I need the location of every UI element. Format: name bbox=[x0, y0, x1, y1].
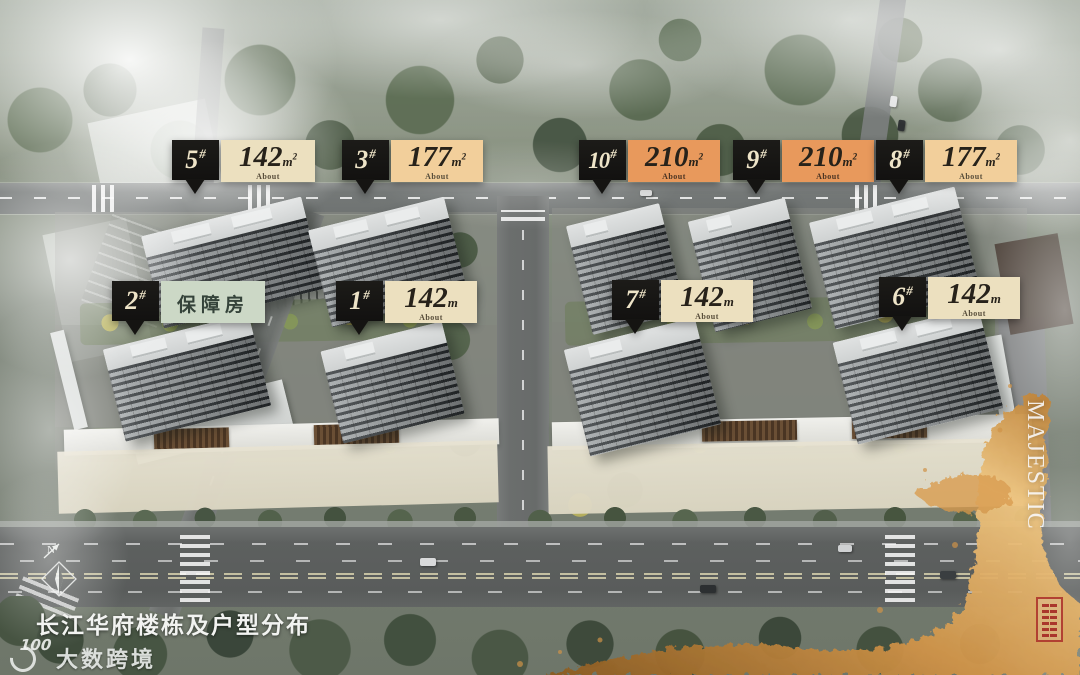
area-value: 142m bbox=[680, 281, 734, 314]
rooftop-unit bbox=[343, 342, 375, 362]
hash-mark: # bbox=[906, 283, 913, 299]
hash-mark: # bbox=[639, 286, 646, 302]
about-note: About bbox=[425, 172, 449, 181]
area-value-box: 177m2About bbox=[925, 140, 1017, 182]
pointer-tail bbox=[185, 179, 205, 194]
building-number: 7 bbox=[625, 287, 638, 313]
hash-mark: # bbox=[369, 146, 376, 162]
pointer-tail bbox=[349, 320, 369, 335]
pointer-tail bbox=[125, 320, 145, 335]
road-central-vertical bbox=[497, 196, 549, 536]
area-value-box: 142mAbout bbox=[928, 277, 1020, 319]
building-number-box: 10# bbox=[579, 140, 626, 180]
building-number: 6 bbox=[892, 284, 905, 310]
hash-mark: # bbox=[760, 146, 767, 162]
rooftop-unit bbox=[588, 339, 623, 359]
area-value-box: 210m2About bbox=[782, 140, 874, 182]
building-number-box: 7# bbox=[612, 280, 659, 320]
pointer-tail bbox=[625, 319, 645, 334]
area-unit-sup: 2 bbox=[462, 152, 467, 162]
about-note: About bbox=[959, 172, 983, 181]
building-number: 2 bbox=[125, 288, 138, 314]
building-label-8: 8# 177m2About bbox=[876, 140, 1017, 182]
building-label-10: 10# 210m2About bbox=[579, 140, 720, 182]
rooftop-unit bbox=[706, 215, 732, 233]
watermark-brand-text: 大数跨境 bbox=[56, 642, 156, 674]
center-line bbox=[0, 577, 1080, 579]
building-number-box: 1# bbox=[336, 281, 383, 321]
lane-marking bbox=[20, 560, 1080, 562]
building-label-2: 2# 保障房 bbox=[112, 281, 265, 323]
building-number-box: 9# bbox=[733, 140, 780, 180]
area-number: 210 bbox=[799, 141, 843, 173]
lane-marking bbox=[8, 591, 1080, 593]
building-label-1: 1# 142mAbout bbox=[336, 281, 477, 323]
building-number: 9 bbox=[746, 147, 759, 173]
area-unit: m bbox=[451, 154, 461, 169]
about-note: About bbox=[962, 309, 986, 318]
building-number-box: 6# bbox=[879, 277, 926, 317]
hash-mark: # bbox=[903, 146, 910, 162]
hash-mark: # bbox=[199, 146, 206, 162]
area-value-box: 210m2About bbox=[628, 140, 720, 182]
area-value: 177m2 bbox=[408, 141, 466, 174]
watermark: 100 大数跨境 bbox=[4, 636, 264, 672]
building-label-5: 5# 142m2About bbox=[172, 140, 315, 182]
center-line bbox=[0, 573, 1080, 575]
crosswalk bbox=[180, 530, 210, 602]
about-note: About bbox=[662, 172, 686, 181]
building-number-box: 3# bbox=[342, 140, 389, 180]
area-unit: m bbox=[842, 154, 852, 169]
car bbox=[420, 558, 436, 566]
about-note: About bbox=[816, 172, 840, 181]
area-value: 210m2 bbox=[799, 141, 857, 174]
building-number: 3 bbox=[355, 147, 368, 173]
area-unit-sup: 2 bbox=[699, 152, 704, 162]
area-unit-sup: 2 bbox=[996, 152, 1001, 162]
watermark-100-icon: 100 bbox=[19, 636, 52, 654]
aerial-site-plan: MAJESTIC N 5# 142m2About 3# 177m2About 1… bbox=[0, 0, 1080, 675]
building-number: 8 bbox=[889, 147, 902, 173]
rooftop-unit bbox=[836, 210, 874, 231]
area-unit-sup: 2 bbox=[853, 152, 858, 162]
about-note: About bbox=[256, 172, 280, 181]
area-unit: m bbox=[985, 154, 995, 169]
building-label-6: 6# 142mAbout bbox=[879, 277, 1020, 319]
building-number: 1 bbox=[349, 288, 362, 314]
building-number: 5 bbox=[185, 147, 198, 173]
car bbox=[838, 545, 852, 552]
fog-cloud bbox=[980, 590, 1080, 675]
lane-marking bbox=[522, 230, 524, 530]
car bbox=[940, 571, 956, 579]
vertical-brand-text: MAJESTIC bbox=[1021, 400, 1048, 531]
building-label-9: 9# 210m2About bbox=[733, 140, 874, 182]
area-value-box: 142m2About bbox=[221, 140, 315, 182]
area-number: 210 bbox=[645, 141, 689, 173]
area-value: 210m2 bbox=[645, 141, 703, 174]
building-number: 10 bbox=[588, 149, 609, 172]
page-title: 长江华府楼栋及户型分布 bbox=[36, 606, 311, 640]
area-value: 保障房 bbox=[177, 290, 249, 317]
area-unit-sup: 2 bbox=[293, 152, 298, 162]
lane-marking bbox=[0, 543, 1080, 545]
car bbox=[700, 585, 716, 593]
seal-mark bbox=[1042, 602, 1049, 637]
crosswalk bbox=[885, 530, 915, 602]
area-number: 142 bbox=[947, 278, 991, 310]
area-value: 177m2 bbox=[942, 141, 1000, 174]
pointer-tail bbox=[592, 179, 612, 194]
area-unit: m bbox=[688, 154, 698, 169]
compass-icon: N bbox=[36, 540, 82, 604]
rooftop-unit bbox=[859, 330, 897, 351]
area-number: 142 bbox=[239, 141, 283, 173]
about-note: About bbox=[695, 312, 719, 321]
hash-mark: # bbox=[610, 146, 617, 162]
seal-stamp bbox=[1036, 597, 1063, 642]
building-number-box: 8# bbox=[876, 140, 923, 180]
road-south-boulevard bbox=[0, 527, 1080, 607]
rooftop-unit bbox=[915, 317, 953, 338]
area-unit: m bbox=[991, 291, 1001, 306]
about-note: About bbox=[419, 313, 443, 322]
area-unit: m bbox=[282, 154, 292, 169]
area-unit: m bbox=[448, 295, 458, 310]
hash-mark: # bbox=[363, 287, 370, 303]
area-value: 142m bbox=[404, 282, 458, 315]
area-value-box: 142mAbout bbox=[385, 281, 477, 323]
area-value: 142m bbox=[947, 278, 1001, 311]
area-number: 177 bbox=[408, 141, 452, 173]
pointer-tail bbox=[889, 179, 909, 194]
area-value: 142m2 bbox=[239, 141, 297, 174]
area-value-box: 保障房 bbox=[161, 281, 265, 323]
area-number: 142 bbox=[680, 281, 724, 313]
area-unit: m bbox=[724, 294, 734, 309]
area-number: 142 bbox=[404, 282, 448, 314]
building-number-box: 2# bbox=[112, 281, 159, 321]
area-value-box: 177m2About bbox=[391, 140, 483, 182]
area-value-box: 142mAbout bbox=[661, 280, 753, 322]
seal-mark bbox=[1050, 602, 1057, 637]
area-number: 保障房 bbox=[177, 295, 249, 316]
building-label-3: 3# 177m2About bbox=[342, 140, 483, 182]
pointer-tail bbox=[355, 179, 375, 194]
building-label-7: 7# 142mAbout bbox=[612, 280, 753, 322]
area-number: 177 bbox=[942, 141, 986, 173]
hash-mark: # bbox=[139, 287, 146, 303]
building-number-box: 5# bbox=[172, 140, 219, 180]
pointer-tail bbox=[892, 316, 912, 331]
pointer-tail bbox=[746, 179, 766, 194]
